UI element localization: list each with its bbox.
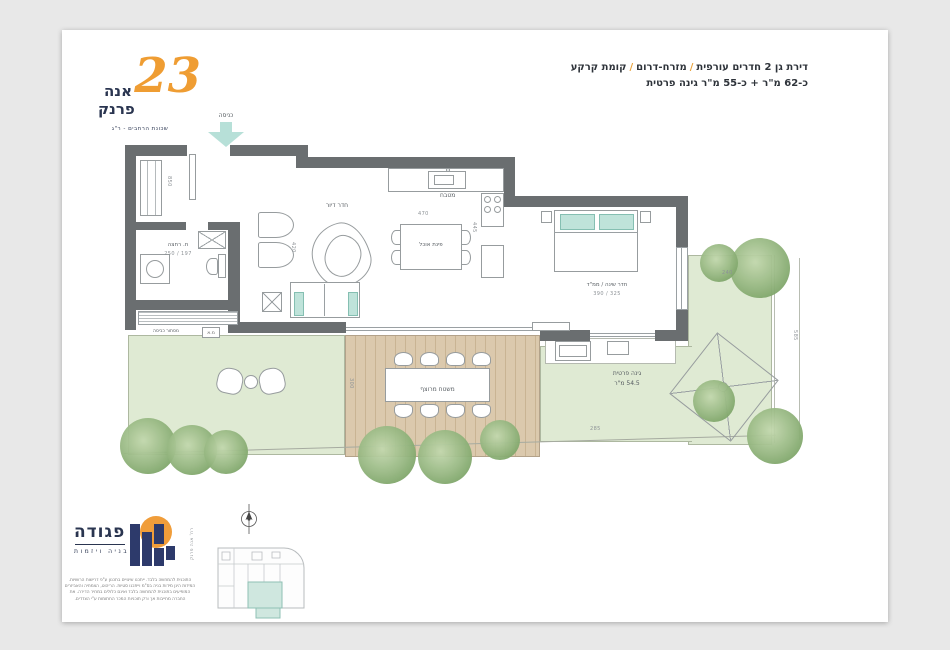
logo-underline — [75, 544, 125, 545]
canvas: { "logo": { "number": "23", "name_top": … — [0, 0, 950, 650]
garden-dim-bottom: 285 — [590, 426, 601, 432]
sofa-cushion — [348, 292, 358, 316]
developer-name: פגודה — [74, 522, 125, 542]
entrance-arrow-icon — [208, 132, 244, 147]
tree — [693, 380, 735, 422]
entrance-arrow-stem — [220, 122, 232, 132]
tree — [418, 430, 472, 484]
nightstand — [541, 211, 552, 223]
pillow — [560, 214, 595, 230]
wall — [136, 222, 186, 230]
deck-chair — [394, 404, 413, 418]
path-line-outer — [799, 258, 800, 440]
toilet-tank — [218, 254, 226, 278]
garden-area: 54.5 מ"ר — [582, 380, 672, 387]
wall — [504, 196, 688, 207]
armchair — [258, 212, 294, 238]
wall — [676, 207, 688, 247]
sofa-cushion — [294, 292, 304, 316]
living-sliding-door — [346, 327, 540, 331]
tv-unit — [262, 292, 282, 312]
dining-chair — [391, 250, 401, 265]
garden-side-table — [244, 375, 258, 389]
bathroom-dims: 250 / 197 — [154, 251, 202, 257]
logo-subtitle: שכונת הרחבים - ר"ג — [84, 126, 196, 132]
armchair — [258, 242, 294, 268]
bathroom-sink — [146, 260, 164, 278]
hall-closet — [140, 160, 162, 216]
wall — [302, 157, 515, 168]
bathroom-label: ח. רחצה — [150, 242, 206, 248]
deck-chair — [472, 404, 491, 418]
plan-sheet: 23 אנה פרנק שכונת הרחבים - ר"ג דירת גן 2… — [62, 30, 888, 622]
logo-name-top: אנה — [104, 82, 132, 100]
wall-dimension: 850 — [166, 176, 172, 187]
deck-chair — [446, 352, 465, 366]
laundry-screen — [138, 311, 238, 325]
developer-tagline: בניה ויזמות — [74, 548, 129, 555]
living-dimension: 420 — [290, 242, 296, 253]
tree — [730, 238, 790, 298]
wall — [125, 145, 187, 156]
title-line2: כ-62 מ"ר + כ-55 מ"ר גינה פרטית — [571, 76, 808, 92]
wall — [240, 322, 346, 333]
laundry-label: מסתור כביסה — [134, 329, 198, 334]
deck-chair — [446, 404, 465, 418]
key-plan — [212, 532, 316, 624]
tree — [204, 430, 248, 474]
title-slash1: / — [687, 62, 697, 73]
garden-dim-right: 585 — [792, 330, 798, 341]
title-slash2: / — [626, 62, 636, 73]
dining-chair — [461, 230, 471, 245]
developer-logo: פגודה בניה ויזמות — [72, 516, 192, 574]
ac-label: מ.א — [207, 331, 215, 336]
burner — [484, 206, 491, 213]
title-seg1: דירת גן 2 חדרים עורפית — [696, 62, 808, 73]
tree — [700, 244, 738, 282]
dining-label: פינת אוכל — [400, 242, 462, 248]
kitchen-sink-basin — [434, 175, 454, 185]
blanket-line — [554, 232, 638, 233]
title-seg3: קומת קרקע — [571, 62, 627, 73]
nightstand — [640, 211, 651, 223]
sofa-seam — [324, 284, 325, 316]
wall — [540, 330, 590, 341]
dresser — [532, 322, 570, 331]
apartment-title: דירת גן 2 חדרים עורפית/מזרח-דרום/קומת קר… — [571, 60, 808, 92]
garden-label: גינה פרטית — [582, 370, 672, 377]
pillow — [599, 214, 634, 230]
outdoor-sink — [607, 341, 629, 355]
bedroom-sliding-door — [590, 333, 655, 337]
burner — [494, 206, 501, 213]
tree — [480, 420, 520, 460]
project-logo: 23 אנה פרנק שכונת הרחבים - ר"ג — [84, 58, 209, 133]
wall — [655, 330, 688, 341]
logo-name-bottom: פרנק — [98, 100, 135, 118]
deck-label: משטח מרוצף — [420, 386, 455, 393]
garden-dim-top: 240 — [722, 270, 733, 276]
deck-dimension: 300 — [348, 378, 354, 389]
deck-chair — [394, 352, 413, 366]
entrance-door-leaf — [189, 154, 196, 200]
tree — [747, 408, 803, 464]
deck-chair — [420, 404, 439, 418]
logo-number: 23 — [134, 48, 201, 104]
kitchen-label: מטבח — [440, 192, 455, 199]
wall — [125, 300, 240, 310]
tree — [358, 426, 416, 484]
bedroom-window — [676, 247, 688, 310]
wall — [208, 222, 228, 230]
deck-chair — [420, 352, 439, 366]
kitchen-dimension: 445 — [471, 222, 477, 233]
ac-outdoor-box: מ.א — [202, 327, 220, 338]
bedroom-label: חדר שינה / ממ"ד — [552, 282, 662, 288]
bedroom-dims: 390 / 325 — [572, 291, 642, 297]
dining-dimension: 470 — [418, 211, 429, 217]
living-label: חדר דיור — [302, 202, 372, 209]
dining-chair — [461, 250, 471, 265]
faucet — [446, 168, 450, 172]
deck-chair — [472, 352, 491, 366]
fridge — [481, 245, 504, 278]
disclaimer-text: התוכנית להמחשה בלבד. ייתכנו שינויים בתכנ… — [64, 578, 196, 603]
title-line1: דירת גן 2 חדרים עורפית/מזרח-דרום/קומת קר… — [571, 60, 808, 76]
entrance-label: כניסה — [202, 112, 250, 119]
toilet-bowl — [206, 258, 218, 275]
ac-condenser-inner — [559, 345, 587, 357]
garden-dining-table: משטח מרוצף — [385, 368, 490, 402]
title-seg2: מזרח-דרום — [636, 62, 687, 73]
burner — [484, 196, 491, 203]
burner — [494, 196, 501, 203]
